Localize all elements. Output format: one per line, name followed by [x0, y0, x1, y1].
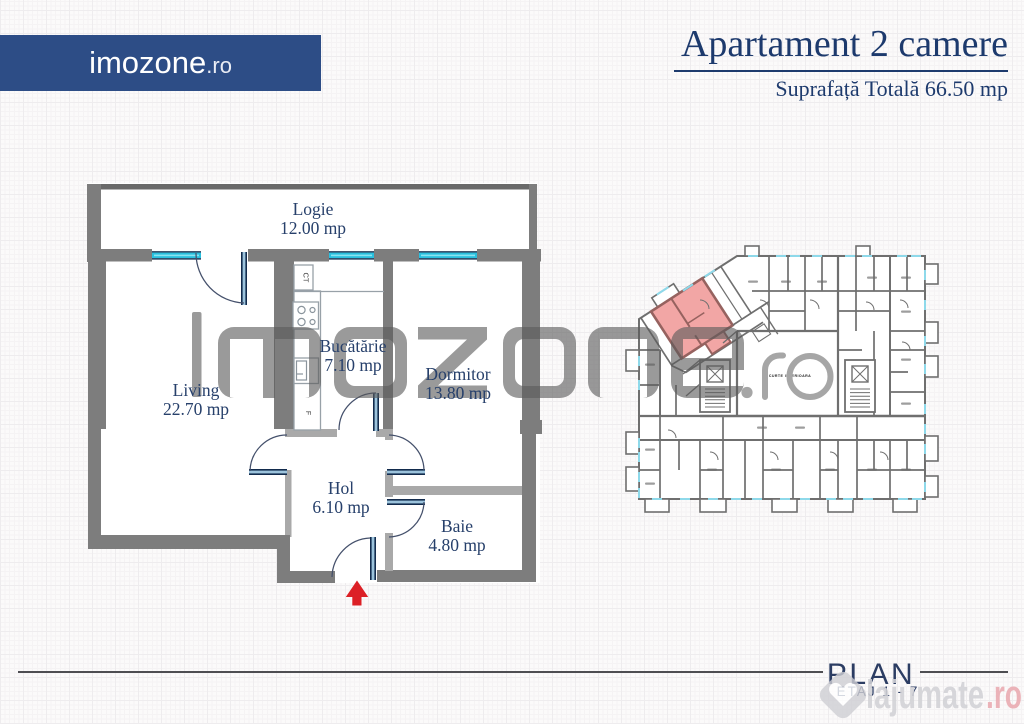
svg-text:7.10 mp: 7.10 mp [324, 355, 382, 375]
svg-text:Logie: Logie [293, 199, 334, 219]
svg-text:CT: CT [302, 273, 311, 283]
svg-text:F: F [304, 411, 311, 415]
svg-text:Bucătărie: Bucătărie [319, 336, 386, 356]
svg-text:.ro: .ro [986, 673, 1022, 717]
svg-text:4.80 mp: 4.80 mp [428, 535, 486, 555]
svg-text:22.70 mp: 22.70 mp [163, 399, 229, 419]
svg-text:6.10 mp: 6.10 mp [312, 497, 370, 517]
svg-text:13.80 mp: 13.80 mp [425, 383, 491, 403]
svg-text:12.00 mp: 12.00 mp [280, 218, 346, 238]
svg-text:Hol: Hol [328, 478, 354, 498]
svg-text:lajumate: lajumate [866, 673, 984, 717]
svg-text:Baie: Baie [441, 516, 473, 536]
svg-text:Dormitor: Dormitor [425, 364, 490, 384]
svg-text:Living: Living [173, 380, 220, 400]
